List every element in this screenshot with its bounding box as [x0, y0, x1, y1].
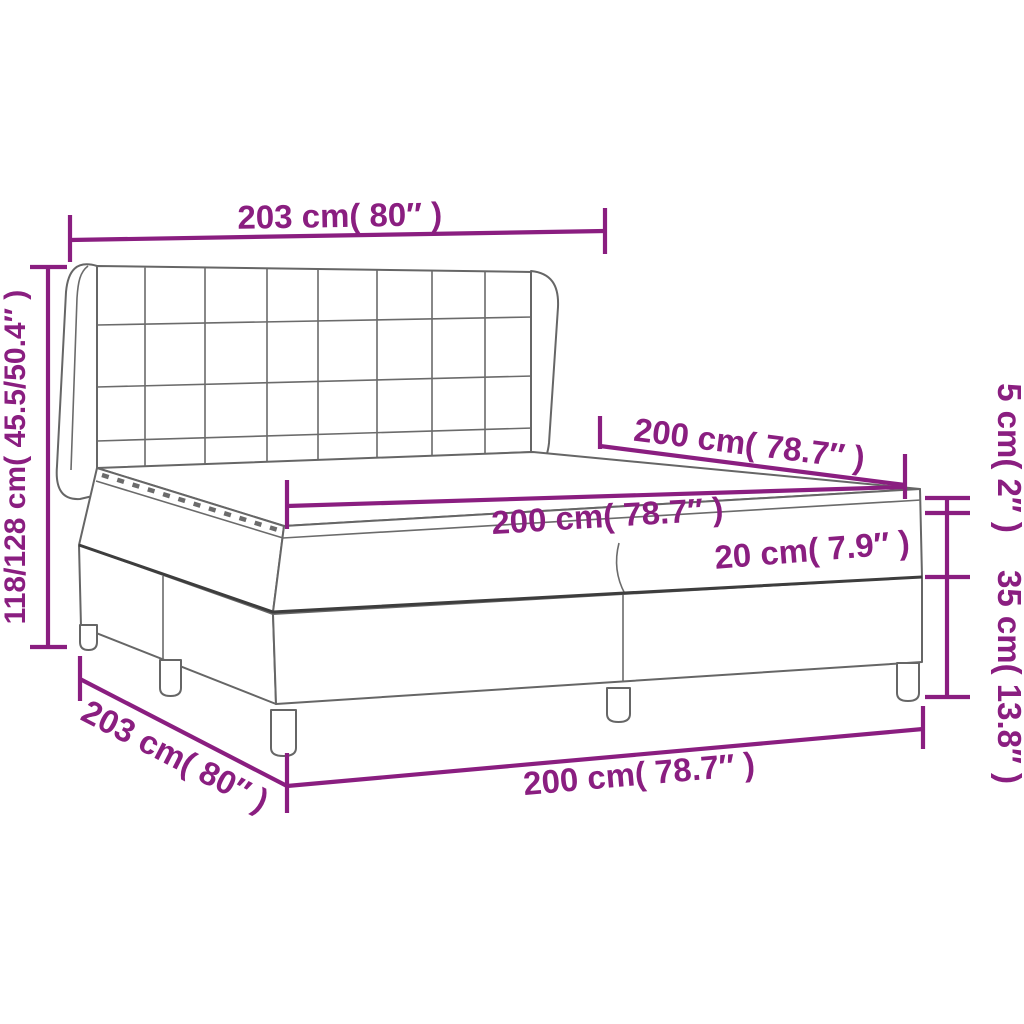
- leg: [80, 625, 97, 650]
- dim-base-length-label: 203 cm( 80″ ): [76, 692, 275, 819]
- leg: [607, 688, 630, 722]
- dim-headboard-width: 203 cm( 80″ ): [70, 195, 605, 262]
- dim-base-width: 200 cm( 78.7″ ): [287, 706, 923, 813]
- leg: [160, 660, 181, 696]
- leg: [897, 663, 919, 701]
- dim-right-stack: 5 cm( 2″ ) 35 cm( 13.8″ ): [925, 383, 1024, 784]
- bed-illustration: [57, 264, 922, 756]
- leg: [271, 710, 296, 756]
- dim-topper-thickness-label: 5 cm( 2″ ): [991, 383, 1024, 533]
- bed-diagram-canvas: 203 cm( 80″ ) 118/128 cm( 45.5/50.4″ ) 2…: [0, 0, 1024, 1024]
- dim-overall-height-label: 118/128 cm( 45.5/50.4″ ): [0, 290, 32, 625]
- dimension-diagram: 203 cm( 80″ ) 118/128 cm( 45.5/50.4″ ) 2…: [0, 0, 1024, 1024]
- dim-headboard-width-label: 203 cm( 80″ ): [237, 195, 442, 236]
- headboard-right-wing: [531, 271, 558, 465]
- dim-base-height-label: 35 cm( 13.8″ ): [991, 570, 1024, 784]
